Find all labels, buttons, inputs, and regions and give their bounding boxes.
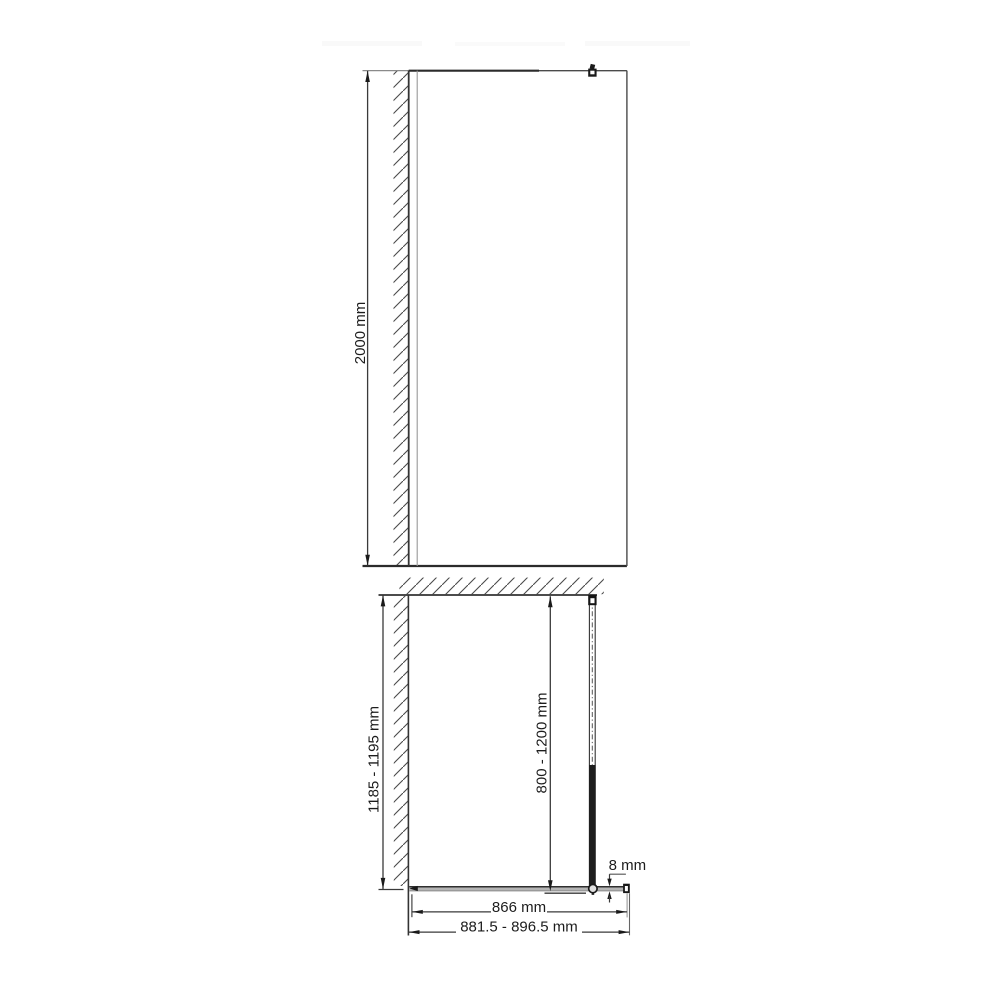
svg-text:881.5 - 896.5 mm: 881.5 - 896.5 mm xyxy=(460,918,578,935)
svg-text:1185 - 1195 mm: 1185 - 1195 mm xyxy=(366,706,383,813)
svg-text:2000 mm: 2000 mm xyxy=(352,302,369,365)
svg-text:800 - 1200 mm: 800 - 1200 mm xyxy=(534,693,551,794)
svg-text:8 mm: 8 mm xyxy=(609,857,647,874)
svg-text:866 mm: 866 mm xyxy=(492,899,546,916)
